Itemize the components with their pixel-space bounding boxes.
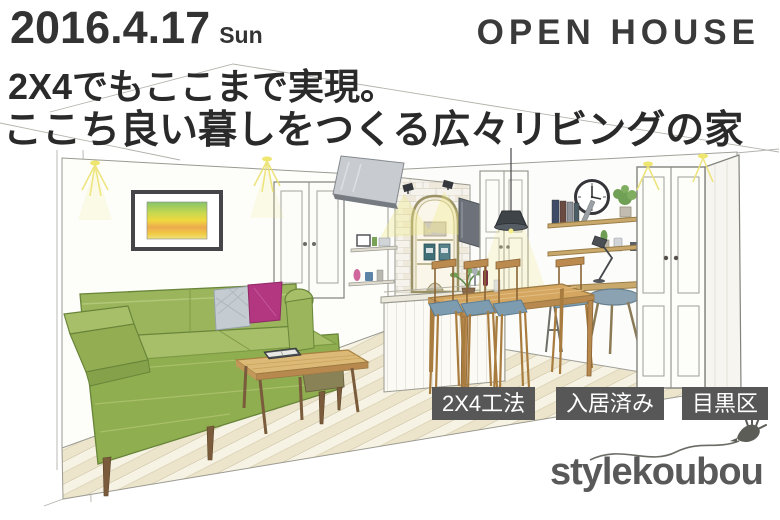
framed-artwork	[133, 192, 221, 249]
event-date: 2016.4.17	[10, 2, 210, 54]
event-date-row: 2016.4.17 Sun	[10, 2, 263, 54]
tag-construction-method: 2X4工法	[432, 387, 535, 420]
tag-location: 目黒区	[682, 387, 768, 420]
open-house-flyer: 2016.4.17 Sun OPEN HOUSE 2X4でもここまで実現。 ここ…	[0, 0, 780, 520]
headline-line2: ここち良い暮しをつくる広々リビングの家	[3, 99, 743, 155]
left-double-door	[274, 182, 344, 298]
magenta-cushion	[248, 282, 282, 323]
gray-cushion	[214, 286, 252, 330]
event-day: Sun	[219, 22, 262, 49]
event-title: OPEN HOUSE	[477, 13, 760, 53]
tall-cabinet	[637, 155, 741, 391]
brand-logo: stylekoubou	[550, 451, 763, 494]
kitchen-brick-wall	[395, 177, 470, 311]
tag-occupancy-status: 入居済み	[556, 387, 664, 420]
